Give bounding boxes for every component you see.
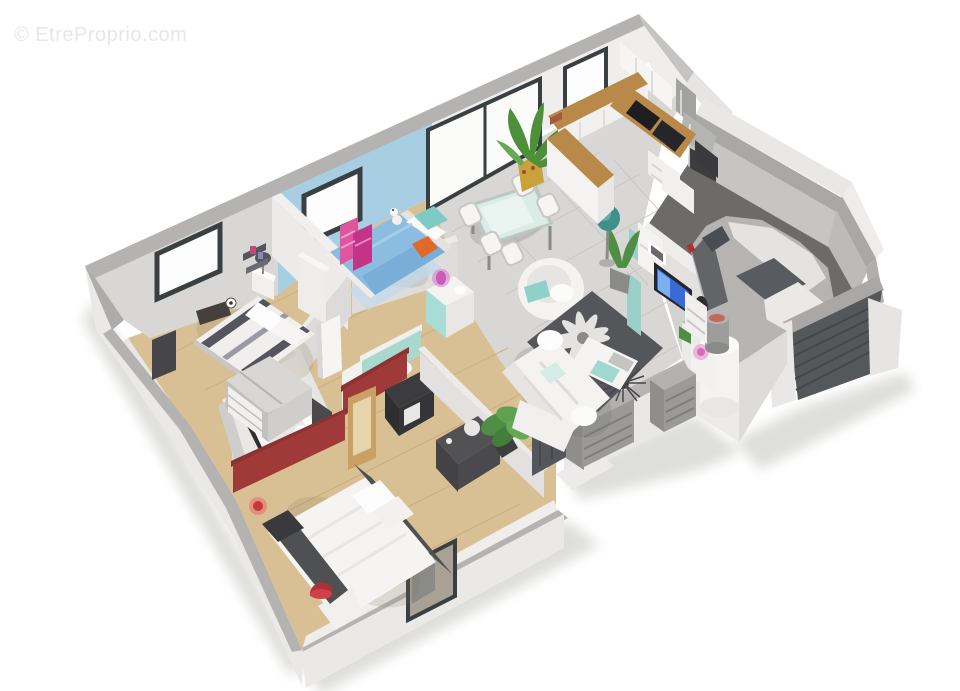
svg-text:© EtreProprio.com: © EtreProprio.com — [14, 24, 187, 46]
